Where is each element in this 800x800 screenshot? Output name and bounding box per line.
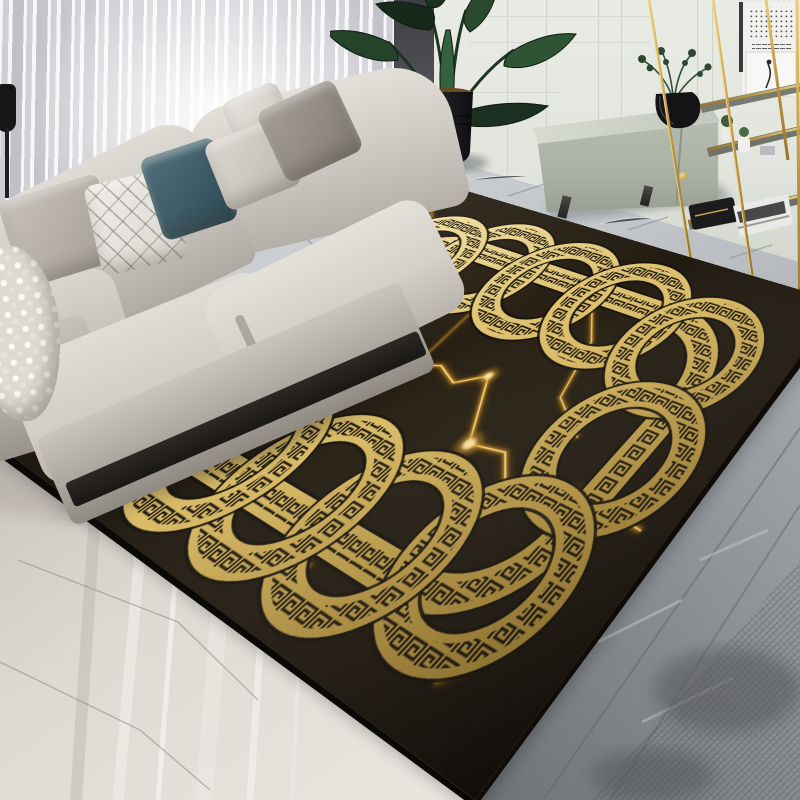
living-room-photo	[0, 0, 800, 800]
